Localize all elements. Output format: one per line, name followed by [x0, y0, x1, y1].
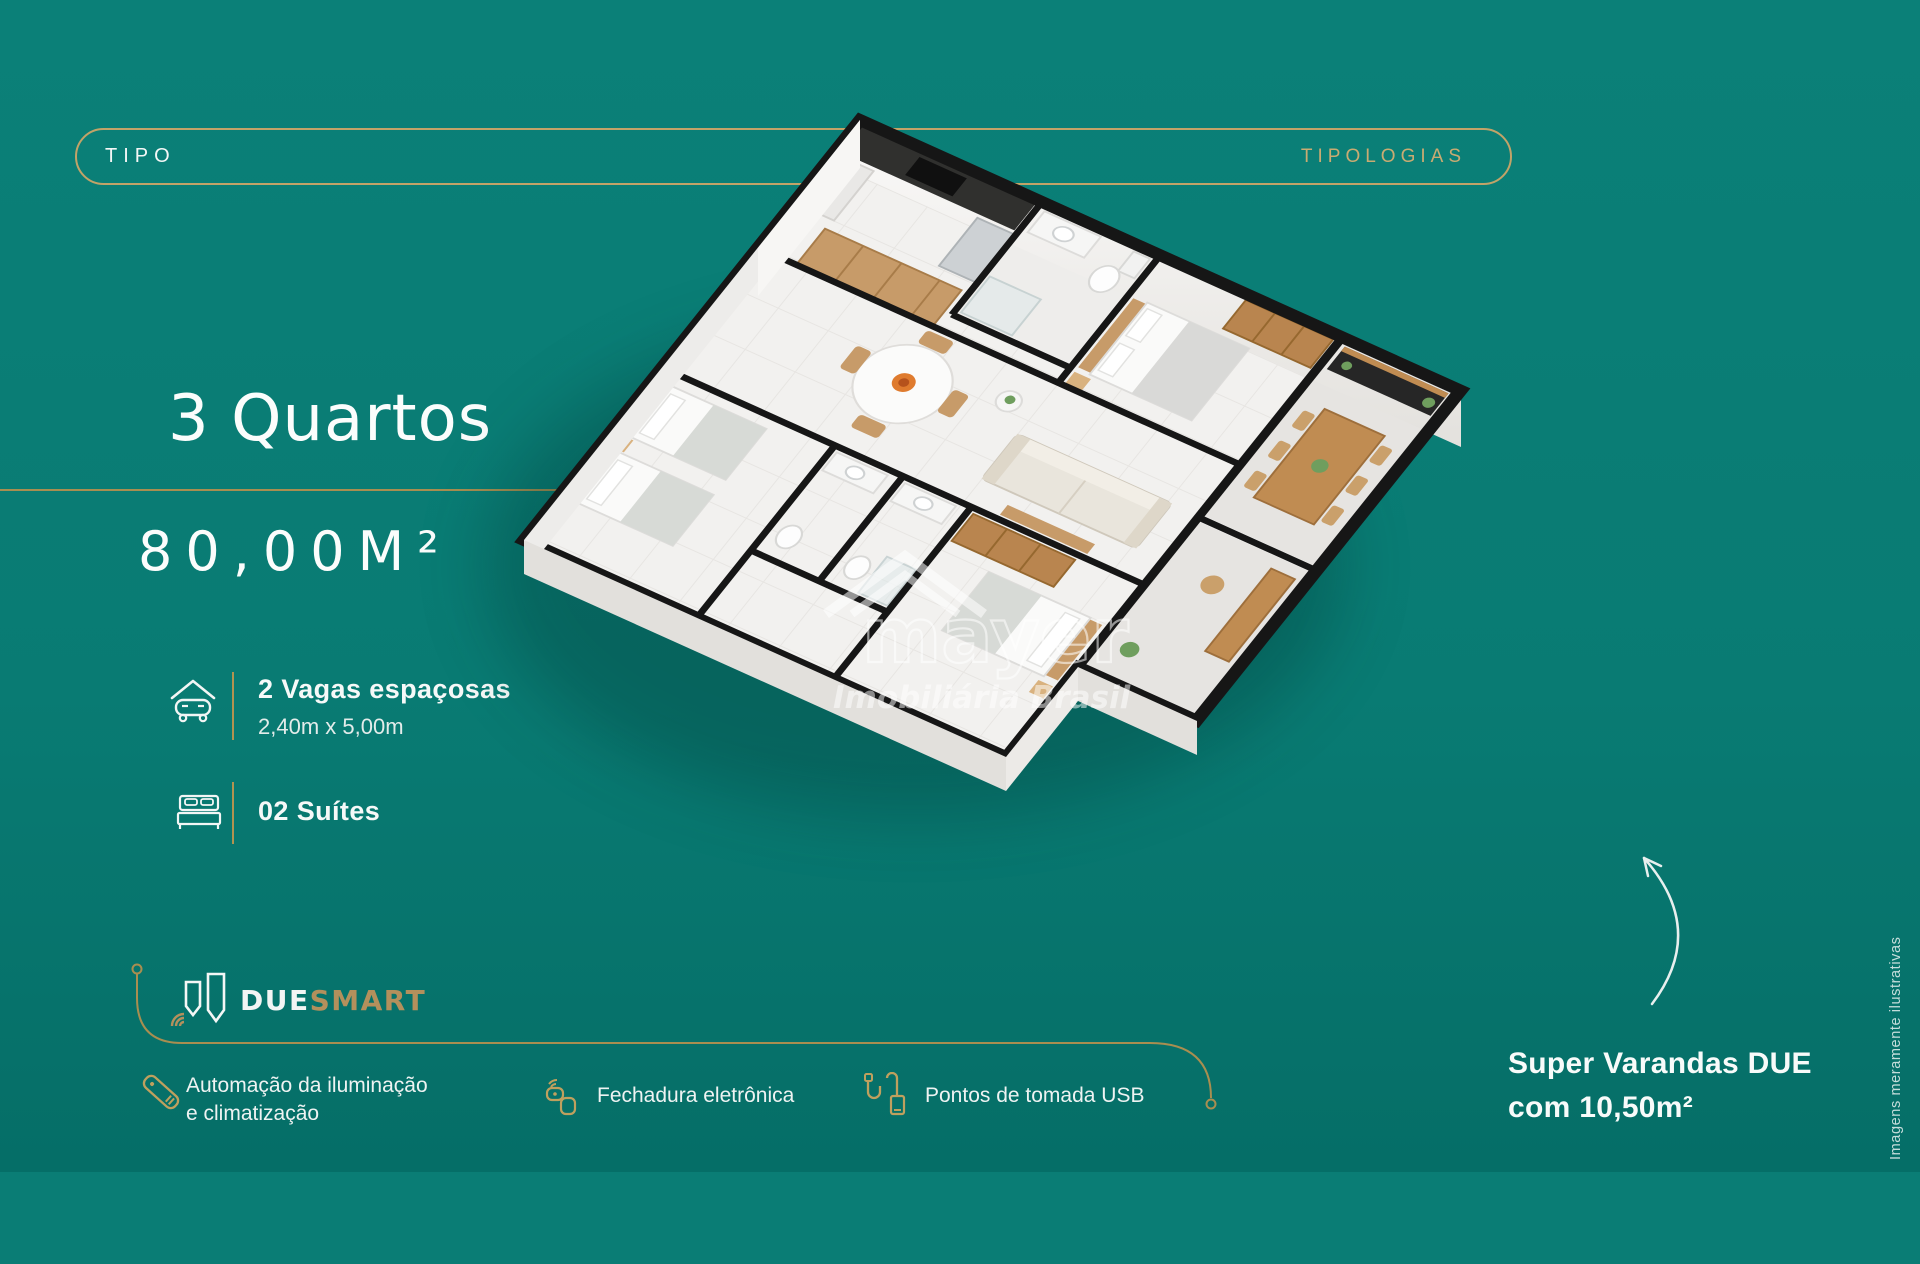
gold-connector-line [133, 965, 1216, 1109]
watermark-subtitle: Imobiliária Brasil [833, 680, 1131, 716]
watermark-name: mayer [862, 591, 1129, 680]
balcony-arrow [1644, 858, 1678, 1004]
floor-plan-illustration: mayer Imobiliária Brasil [0, 0, 1920, 1264]
